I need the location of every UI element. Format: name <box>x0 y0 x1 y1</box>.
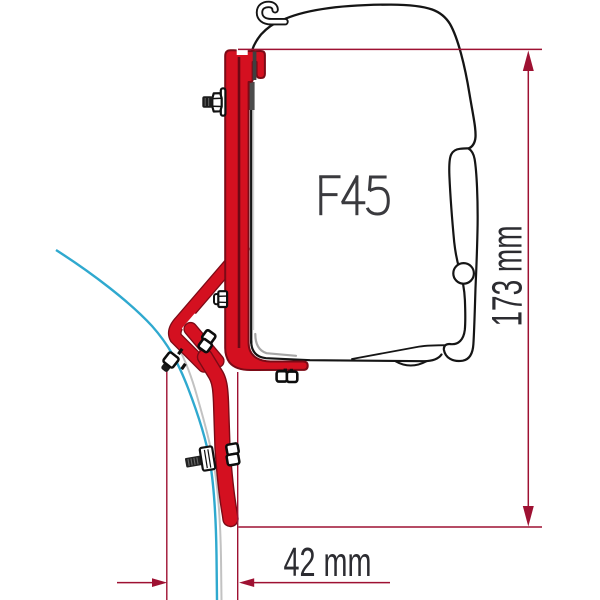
svg-text:42 mm: 42 mm <box>284 539 372 585</box>
svg-text:173 mm: 173 mm <box>484 226 532 327</box>
